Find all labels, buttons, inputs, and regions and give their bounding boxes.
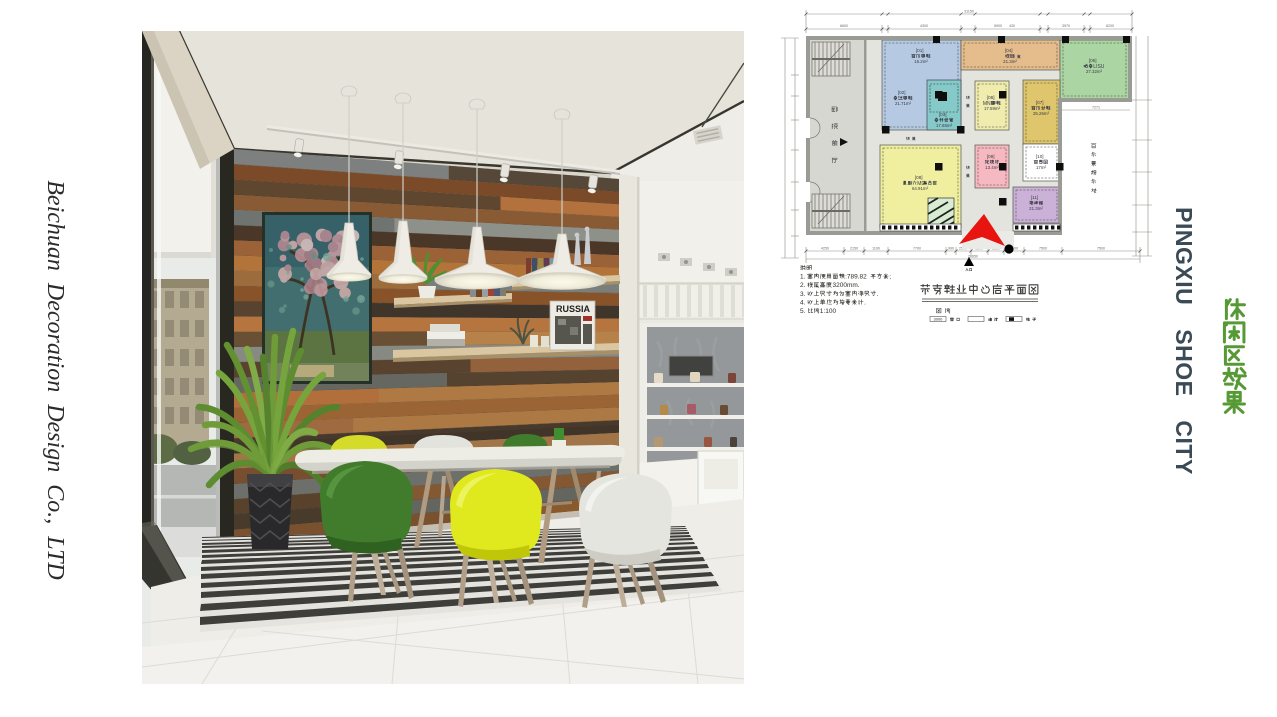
svg-text:7271: 7271 bbox=[1092, 106, 1100, 110]
svg-text:31150: 31150 bbox=[964, 10, 974, 14]
svg-text:7500: 7500 bbox=[1097, 247, 1105, 251]
svg-text:[01]: [01] bbox=[916, 48, 924, 53]
svg-text:3000: 3000 bbox=[934, 317, 944, 322]
svg-text:[08]: [08] bbox=[915, 175, 923, 180]
svg-text:[06]: [06] bbox=[987, 95, 995, 100]
svg-text:25.26m²: 25.26m² bbox=[1033, 111, 1050, 116]
svg-text:[07]: [07] bbox=[1036, 100, 1044, 105]
svg-text:4.: 4. bbox=[800, 299, 806, 306]
svg-text:5900: 5900 bbox=[994, 24, 1002, 28]
svg-text:4250: 4250 bbox=[821, 247, 829, 251]
svg-text:[03]: [03] bbox=[939, 112, 947, 117]
svg-text:21.71m²: 21.71m² bbox=[895, 101, 912, 106]
svg-text:7700: 7700 bbox=[913, 247, 921, 251]
svg-text:[04]: [04] bbox=[1005, 48, 1013, 53]
svg-text:5.: 5. bbox=[800, 308, 806, 315]
svg-text:.: . bbox=[877, 291, 879, 298]
svg-text:1:100: 1:100 bbox=[820, 308, 837, 315]
svg-text:[10]: [10] bbox=[1036, 154, 1044, 159]
svg-text:;: ; bbox=[889, 274, 891, 281]
svg-text:4300: 4300 bbox=[920, 24, 928, 28]
svg-text:26650: 26650 bbox=[968, 255, 978, 259]
svg-text:6200: 6200 bbox=[1106, 24, 1114, 28]
svg-text:21.3m²: 21.3m² bbox=[1029, 206, 1043, 211]
svg-text:[05]: [05] bbox=[1089, 58, 1097, 63]
svg-text::789.82: :789.82 bbox=[845, 274, 867, 281]
svg-text:3.: 3. bbox=[800, 291, 806, 298]
svg-text:990: 990 bbox=[948, 247, 954, 251]
svg-text:7500: 7500 bbox=[1039, 247, 1047, 251]
svg-text:1.: 1. bbox=[800, 274, 806, 281]
svg-text:[09]: [09] bbox=[987, 154, 995, 159]
svg-text:2.: 2. bbox=[800, 282, 806, 289]
svg-text:27.32m²: 27.32m² bbox=[1086, 69, 1103, 74]
svg-text:64.91m²: 64.91m² bbox=[912, 186, 929, 191]
svg-text:[02]: [02] bbox=[898, 90, 906, 95]
svg-text:21.3m²: 21.3m² bbox=[1003, 59, 1017, 64]
svg-text:3200mm.: 3200mm. bbox=[833, 282, 860, 289]
svg-text:[11]: [11] bbox=[1031, 195, 1038, 200]
svg-text:17m²: 17m² bbox=[1036, 165, 1047, 170]
svg-text:6600: 6600 bbox=[840, 24, 848, 28]
svg-text:13.4m²: 13.4m² bbox=[985, 165, 999, 170]
svg-text:17.65m²: 17.65m² bbox=[936, 123, 953, 128]
svg-text:430: 430 bbox=[1009, 24, 1015, 28]
svg-text:.: . bbox=[864, 299, 866, 306]
svg-text:1100: 1100 bbox=[872, 247, 880, 251]
svg-text:17.59m²: 17.59m² bbox=[984, 106, 1001, 111]
svg-text:16.2m²: 16.2m² bbox=[914, 59, 928, 64]
svg-text:2150: 2150 bbox=[850, 247, 858, 251]
svg-text:3970: 3970 bbox=[1062, 24, 1070, 28]
